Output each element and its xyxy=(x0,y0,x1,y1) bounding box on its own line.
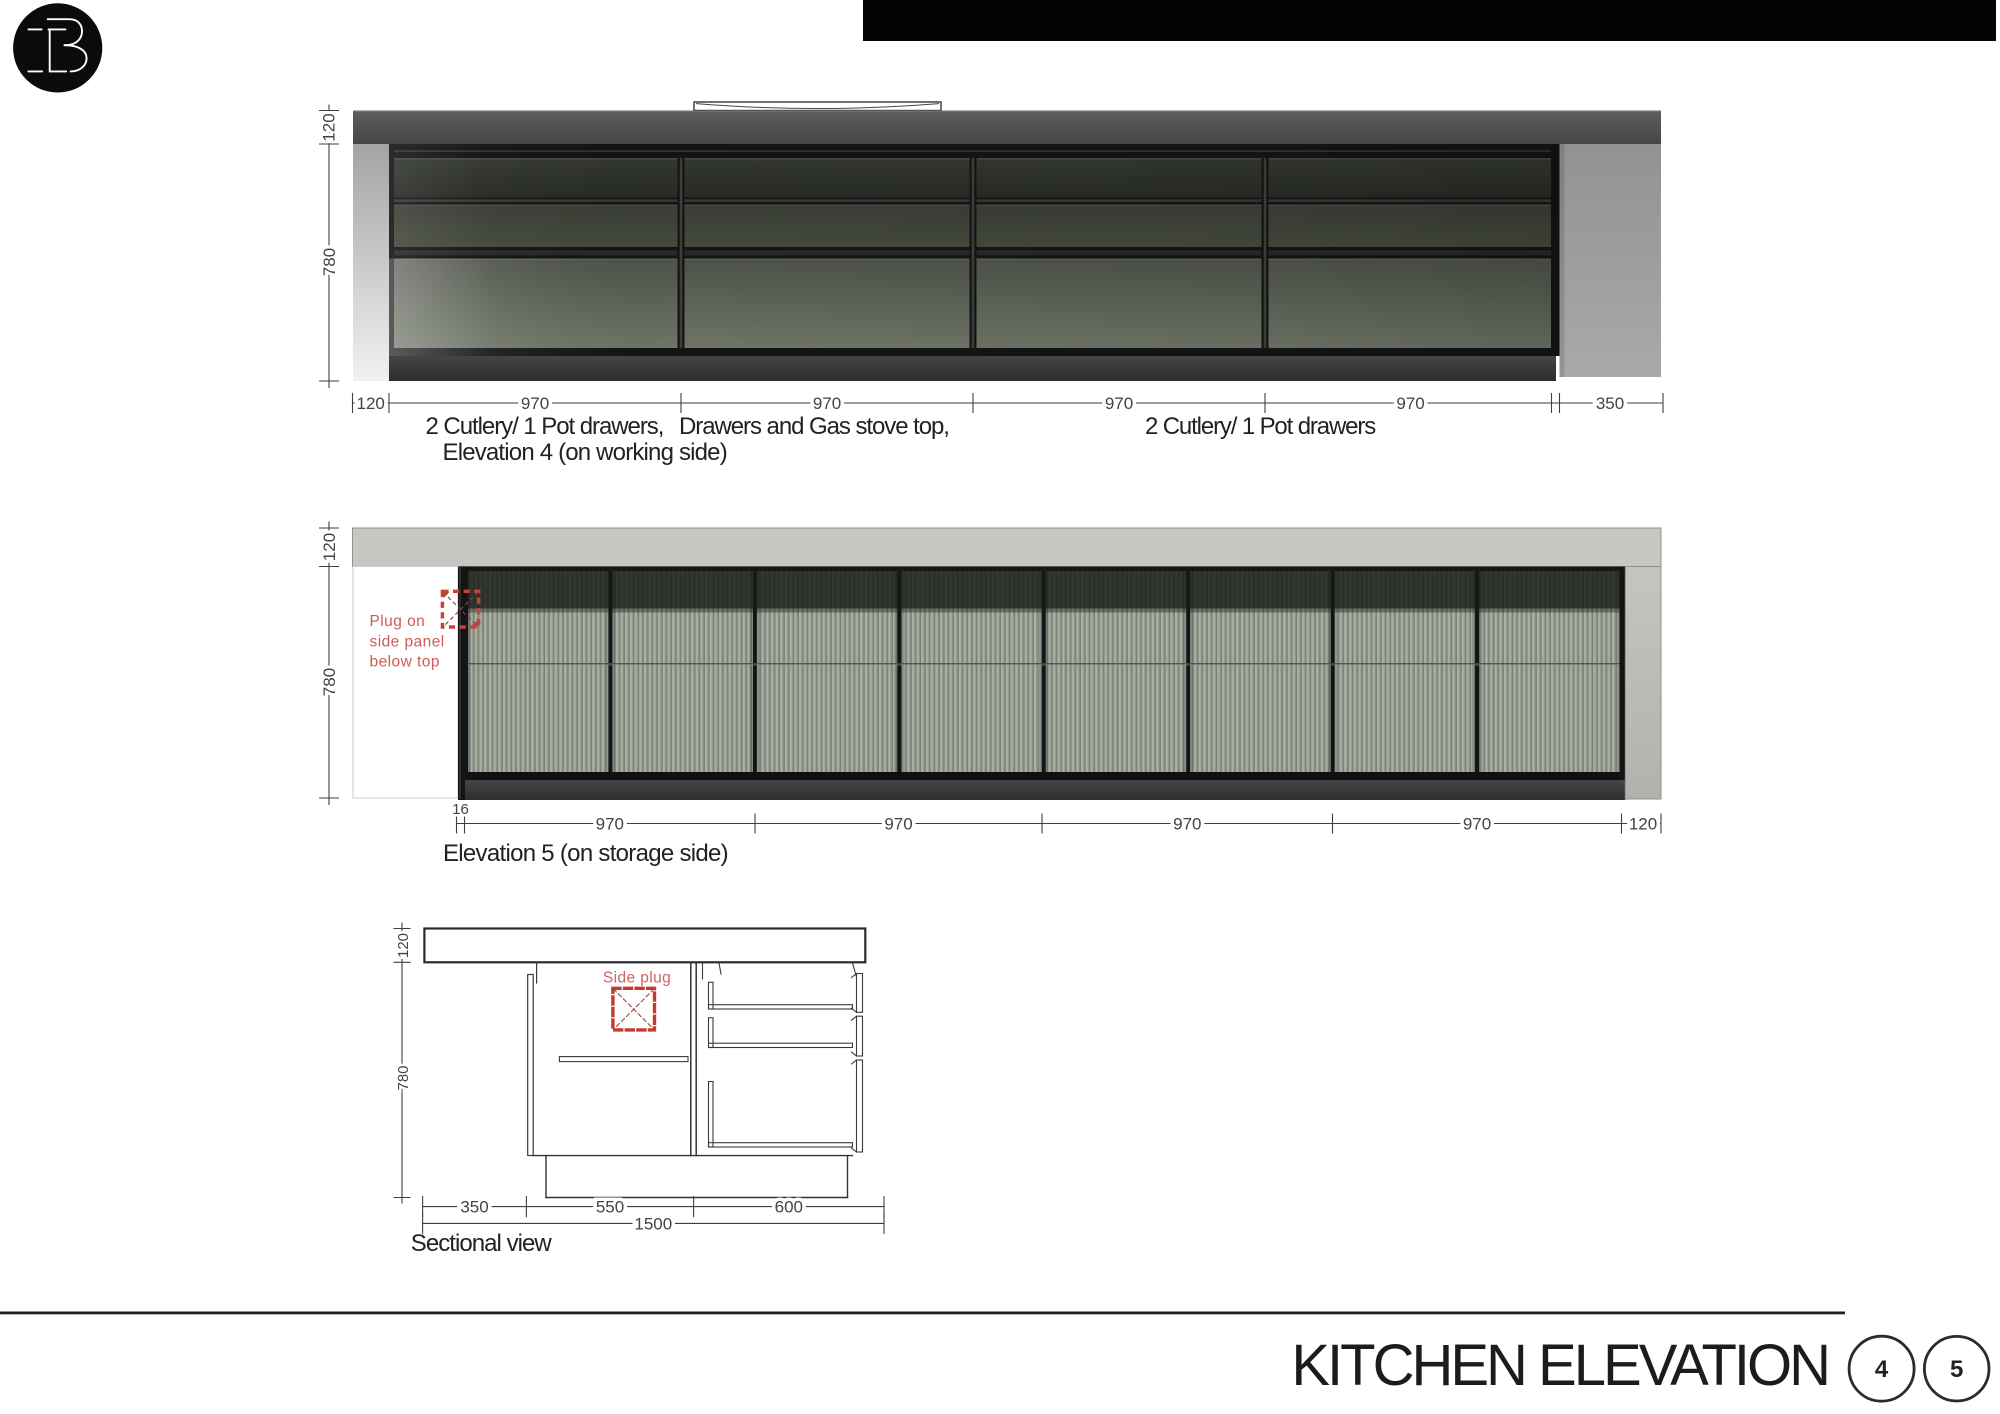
svg-text:600: 600 xyxy=(775,1198,803,1217)
svg-text:Elevation 4 (on working side): Elevation 4 (on working side) xyxy=(443,439,727,466)
svg-text:970: 970 xyxy=(1105,394,1133,413)
svg-text:970: 970 xyxy=(1463,815,1491,834)
svg-text:780: 780 xyxy=(320,248,339,276)
svg-text:2 Cutlery/ 1 Pot drawers: 2 Cutlery/ 1 Pot drawers xyxy=(1145,413,1376,440)
svg-text:Sectional view: Sectional view xyxy=(411,1230,553,1257)
svg-text:Elevation 5 (on storage side): Elevation 5 (on storage side) xyxy=(443,840,728,867)
svg-text:below top: below top xyxy=(370,654,440,671)
svg-text:16: 16 xyxy=(452,801,469,818)
svg-text:5: 5 xyxy=(1950,1356,1963,1383)
svg-text:120: 120 xyxy=(1629,815,1657,834)
svg-text:970: 970 xyxy=(813,394,841,413)
svg-text:970: 970 xyxy=(1396,394,1424,413)
svg-text:970: 970 xyxy=(521,394,549,413)
svg-text:780: 780 xyxy=(320,668,339,696)
svg-text:970: 970 xyxy=(1173,815,1201,834)
svg-text:350: 350 xyxy=(460,1198,488,1217)
svg-text:side panel: side panel xyxy=(370,633,445,650)
svg-text:350: 350 xyxy=(1596,394,1624,413)
svg-text:Drawers and Gas stove top,: Drawers and Gas stove top, xyxy=(679,413,949,440)
svg-text:Side plug: Side plug xyxy=(603,970,671,987)
svg-text:1500: 1500 xyxy=(634,1214,672,1233)
svg-text:120: 120 xyxy=(357,394,385,413)
svg-text:120: 120 xyxy=(395,933,412,958)
svg-text:120: 120 xyxy=(320,113,339,141)
svg-text:Plug on: Plug on xyxy=(370,613,426,630)
svg-text:KITCHEN ELEVATION: KITCHEN ELEVATION xyxy=(1291,1333,1828,1398)
svg-text:970: 970 xyxy=(884,815,912,834)
svg-text:4: 4 xyxy=(1875,1356,1889,1383)
svg-text:970: 970 xyxy=(596,815,624,834)
svg-text:550: 550 xyxy=(596,1198,624,1217)
svg-text:780: 780 xyxy=(395,1065,412,1090)
svg-text:120: 120 xyxy=(320,533,339,561)
svg-text:2 Cutlery/ 1 Pot drawers,: 2 Cutlery/ 1 Pot drawers, xyxy=(426,413,664,440)
